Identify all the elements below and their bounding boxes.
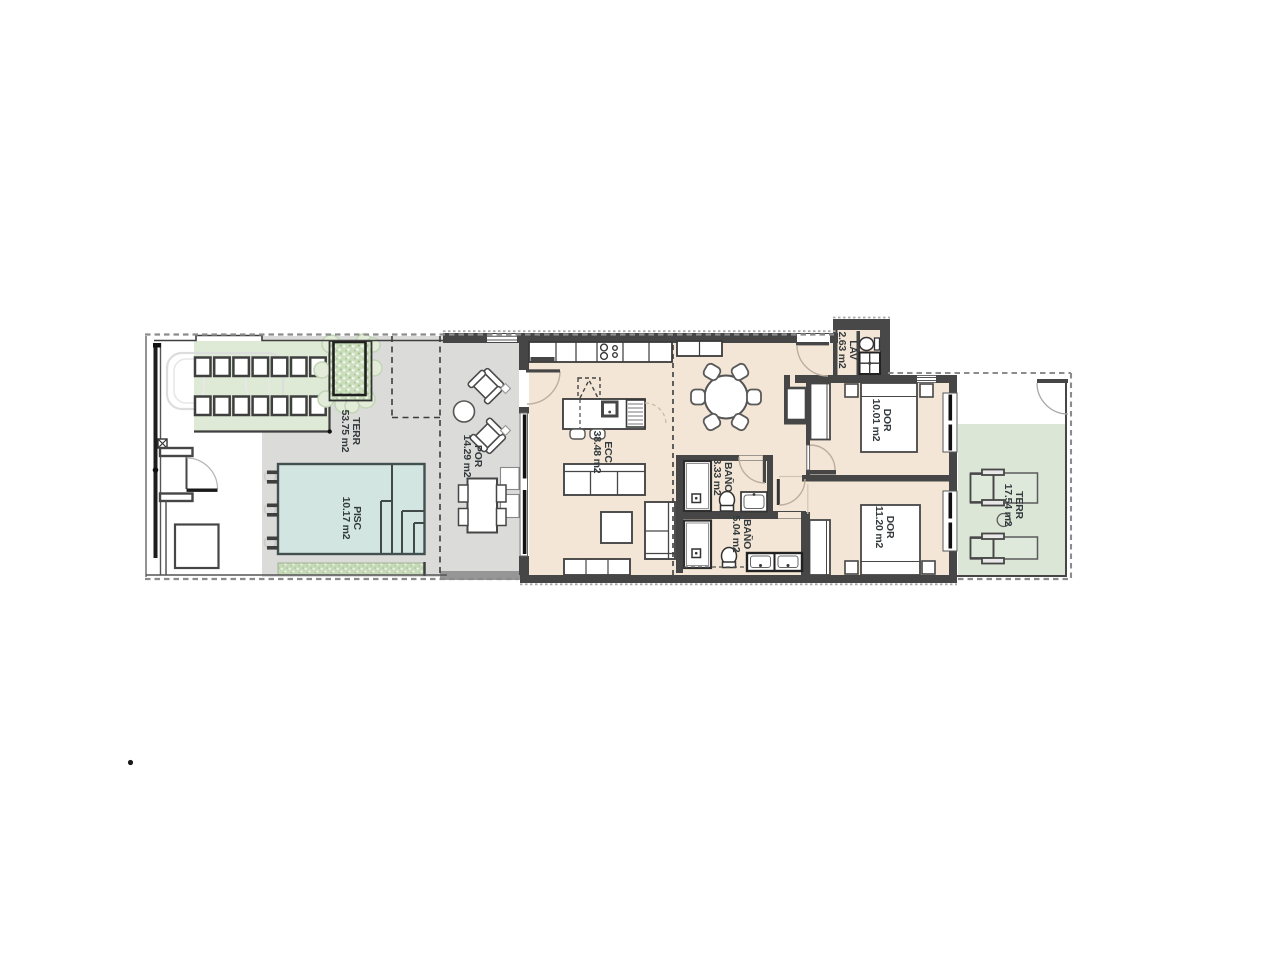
svg-text:BAÑO5.04 m2: BAÑO5.04 m2: [730, 515, 754, 552]
svg-text:BAÑO3.33 m2: BAÑO3.33 m2: [711, 458, 735, 495]
